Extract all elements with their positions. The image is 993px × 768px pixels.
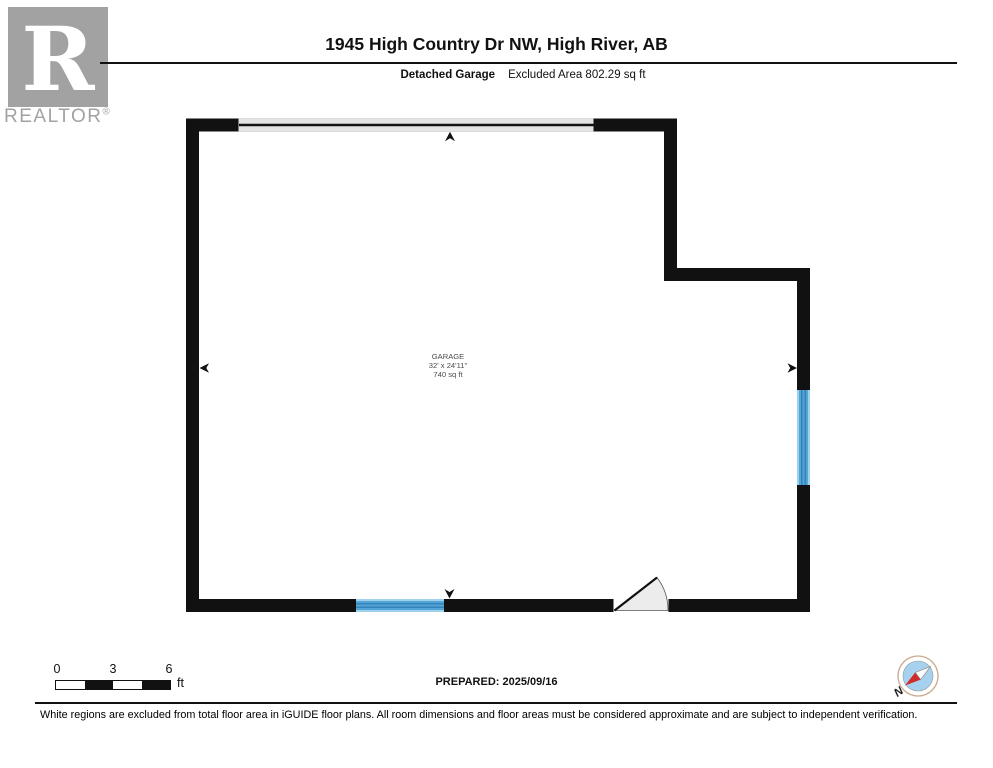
floor-plan: GARAGE 32' x 24'11" 740 sq ft: [0, 0, 993, 768]
compass-icon: N: [894, 654, 942, 702]
scale-label-3: 3: [110, 662, 117, 676]
room-name: GARAGE: [432, 352, 465, 361]
disclaimer-text: White regions are excluded from total fl…: [40, 709, 970, 721]
scale-label-6: 6: [166, 662, 173, 676]
garage-door: [239, 119, 594, 132]
footer-divider: [35, 702, 957, 704]
window-bottom: [356, 599, 444, 612]
room-dimensions: 32' x 24'11": [429, 361, 468, 370]
scale-label-0: 0: [54, 662, 61, 676]
garage-walls: [193, 125, 804, 606]
window-right: [797, 390, 810, 485]
prepared-date: PREPARED: 2025/09/16: [0, 676, 993, 688]
room-label: GARAGE 32' x 24'11" 740 sq ft: [429, 352, 468, 379]
room-area: 740 sq ft: [433, 370, 463, 379]
floorplan-page: { "brand": { "logo_letter": "R", "name":…: [0, 0, 993, 768]
